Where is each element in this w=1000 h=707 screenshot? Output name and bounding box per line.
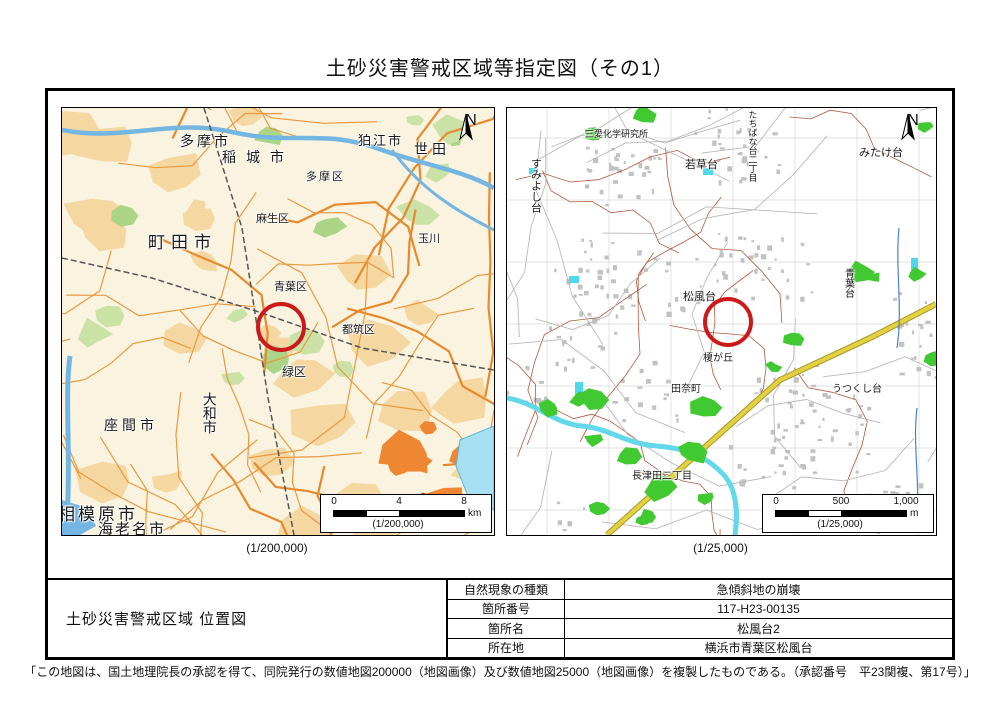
detail-map: すみよし台 三愛化学研究所 若草台 たちばな台二丁目 みたけ台 松風台 青葉台 … (506, 107, 937, 536)
scale-caption-right: (1/25,000) (506, 541, 935, 555)
location-marker-circle (703, 297, 753, 347)
map-label: 多摩区 (306, 172, 345, 184)
scale-bar: 0 500 1,000 m (1/25,000) (762, 494, 934, 533)
map-label: 青葉台 (842, 268, 853, 298)
map-title-cell: 土砂災害警戒区域 位置図 (48, 580, 448, 657)
map-label: 長津田二丁目 (632, 472, 692, 483)
scale-ratio: (1/25,000) (771, 519, 909, 530)
row-value: 松風台2 (565, 619, 952, 638)
map-label: うつくし台 (832, 385, 882, 396)
row-value: 117-H23-00135 (565, 600, 952, 619)
row-label: 所在地 (448, 639, 565, 658)
north-arrow: N (457, 113, 485, 129)
north-arrow-icon (899, 113, 917, 141)
map-label: 三愛化学研究所 (585, 130, 648, 139)
info-table: 自然現象の種類 急傾斜地の崩壊 箇所番号 117-H23-00135 箇所名 松… (448, 580, 952, 657)
map-label: 多摩市 (180, 134, 231, 149)
map-label: 榎が丘 (703, 354, 733, 365)
map-label: 町田市 (148, 234, 217, 252)
scale-ratio: (1/200,000) (329, 519, 467, 530)
document-page: 土砂災害警戒区域等指定図（その1） 多摩市 稲城市 狛江市 (0, 0, 1000, 707)
map-label: たちばな台二丁目 (747, 110, 756, 182)
map-label: 緑区 (282, 366, 306, 379)
map-label: 大和市 (202, 392, 217, 434)
scale-unit: km (468, 508, 481, 519)
table-row: 箇所名 松風台2 (448, 619, 952, 639)
map-label: 座間市 (104, 418, 158, 433)
scale-bar: 0 4 8 km (1/200,000) (320, 494, 492, 533)
scale-ticks: 0 500 1,000 (767, 496, 929, 508)
overview-map: 多摩市 稲城市 狛江市 世田 玉川 多摩区 麻生区 町田市 青葉区 都筑区 緑区… (61, 107, 495, 536)
map-label: 世田 (414, 142, 450, 157)
map-label: 狛江市 (358, 134, 403, 148)
map-label: 都筑区 (342, 325, 375, 337)
scale-bar-graphic (333, 510, 465, 517)
map-label: 若草台 (685, 160, 718, 172)
scale-unit: m (910, 508, 918, 519)
row-label: 箇所名 (448, 619, 565, 638)
info-panel: 土砂災害警戒区域 位置図 自然現象の種類 急傾斜地の崩壊 箇所番号 117-H2… (48, 578, 952, 657)
row-label: 箇所番号 (448, 600, 565, 619)
table-row: 箇所番号 117-H23-00135 (448, 600, 952, 620)
map-label: すみよし台 (529, 158, 541, 213)
footer-note: 「この地図は、国土地理院長の承認を得て、同院発行の数値地図200000（地図画像… (0, 663, 1000, 680)
location-marker-circle (256, 302, 306, 352)
map-label: みたけ台 (859, 148, 903, 160)
scale-bar-graphic (775, 510, 907, 517)
scale-caption-left: (1/200,000) (61, 541, 493, 555)
row-label: 自然現象の種類 (448, 580, 565, 599)
map-label: 海老名市 (98, 522, 166, 536)
row-value: 急傾斜地の崩壊 (565, 580, 952, 599)
map-label: 田奈町 (671, 385, 701, 396)
table-row: 所在地 横浜市青葉区松風台 (448, 639, 952, 658)
page-title: 土砂災害警戒区域等指定図（その1） (0, 52, 1000, 81)
map-label: 玉川 (418, 234, 440, 246)
north-arrow: N (899, 113, 927, 129)
map-label: 青葉区 (274, 282, 307, 294)
scale-ticks: 0 4 8 (325, 496, 487, 508)
row-value: 横浜市青葉区松風台 (565, 639, 952, 658)
map-label: 麻生区 (256, 214, 289, 226)
north-arrow-icon (457, 113, 475, 141)
main-frame: 多摩市 稲城市 狛江市 世田 玉川 多摩区 麻生区 町田市 青葉区 都筑区 緑区… (45, 88, 955, 660)
map-label: 稲城市 (222, 150, 294, 165)
table-row: 自然現象の種類 急傾斜地の崩壊 (448, 580, 952, 600)
